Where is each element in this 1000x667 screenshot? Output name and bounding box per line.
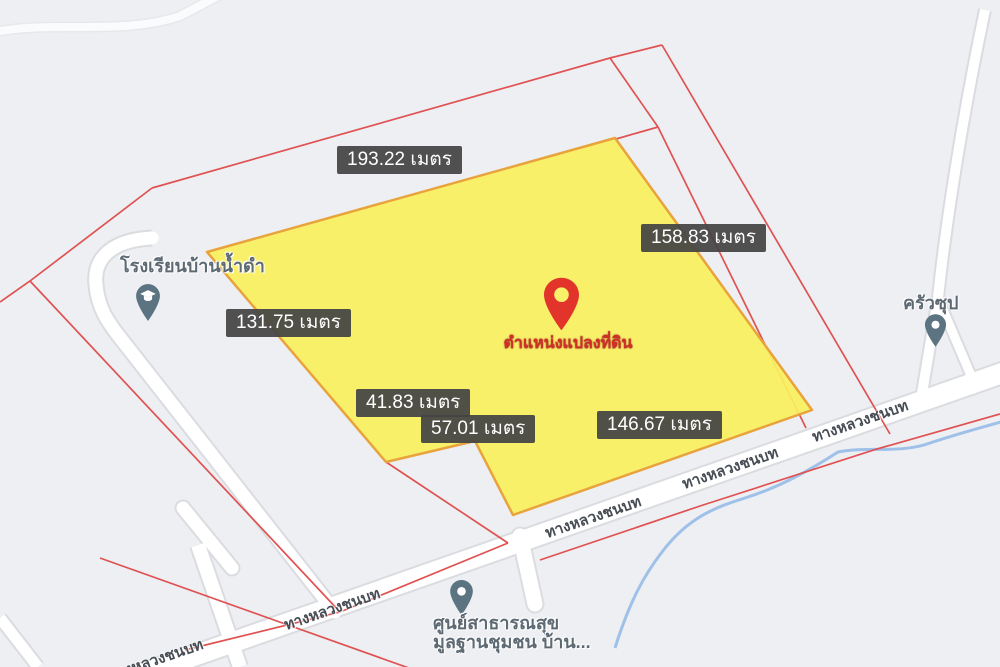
road-label: ทางหลวงชนบท — [790, 387, 930, 455]
measurement-chip: 158.83 เมตร — [641, 224, 766, 252]
school-pin-icon[interactable] — [135, 284, 161, 321]
health-pin-icon[interactable] — [449, 580, 474, 615]
road-label: ทางหลวงชนบท — [523, 483, 663, 551]
plot-marker[interactable] — [544, 276, 579, 337]
road-label: ทางหลวงชนบท — [262, 575, 402, 643]
measurement-chip: 131.75 เมตร — [226, 309, 351, 337]
road-label: ทางหลวงชนบท — [85, 626, 225, 667]
measurement-chip: 57.01 เมตร — [421, 415, 535, 443]
poi-label-health-center[interactable]: ศูนย์สาธารณสุข มูลฐานชุมชน บ้าน... — [433, 614, 591, 652]
road-label: ทางหลวงชนบท — [660, 434, 800, 502]
restaurant-pin-icon[interactable] — [924, 314, 947, 347]
map-canvas[interactable]: 193.22 เมตร 158.83 เมตร 131.75 เมตร 41.8… — [0, 0, 1000, 667]
location-pin-icon[interactable] — [544, 276, 579, 332]
poi-label-health-line1: ศูนย์สาธารณสุข — [433, 614, 591, 633]
poi-school[interactable] — [135, 284, 161, 326]
plot-marker-label: ตำแหน่งแปลงที่ดิน — [482, 331, 654, 356]
measurement-chip: 146.67 เมตร — [597, 411, 722, 439]
poi-label-restaurant[interactable]: ครัวซุป — [903, 288, 958, 317]
map-overlay: 193.22 เมตร 158.83 เมตร 131.75 เมตร 41.8… — [0, 0, 1000, 667]
poi-label-school[interactable]: โรงเรียนบ้านน้ำดำ — [120, 251, 265, 280]
measurement-chip: 193.22 เมตร — [337, 146, 462, 174]
measurement-chip: 41.83 เมตร — [356, 389, 470, 417]
poi-label-health-line2: มูลฐานชุมชน บ้าน... — [433, 633, 591, 652]
poi-restaurant[interactable] — [924, 314, 947, 352]
